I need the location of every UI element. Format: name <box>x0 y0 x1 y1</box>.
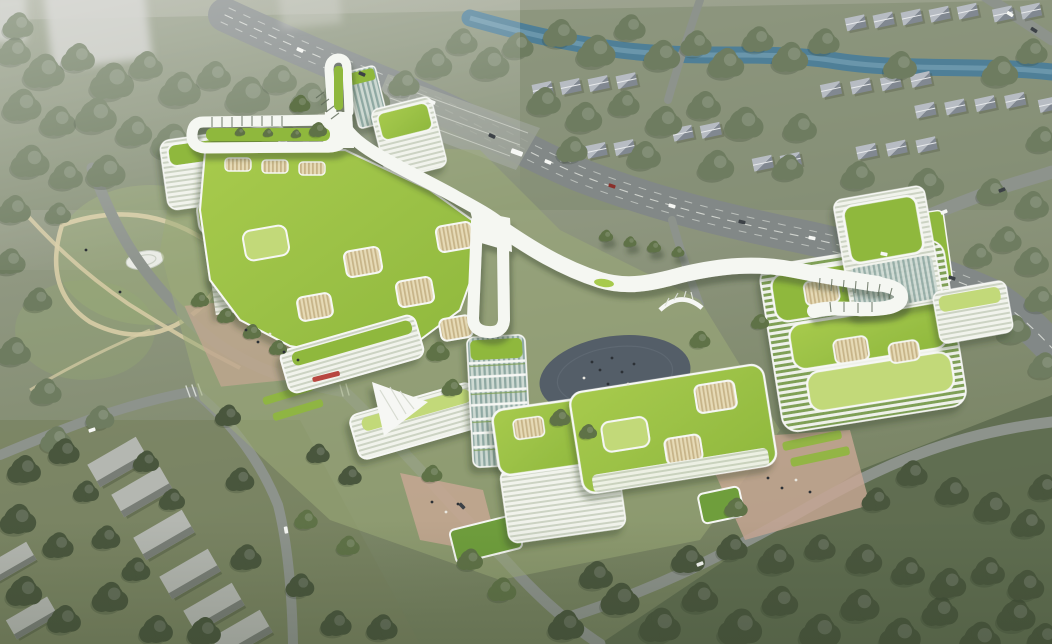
rendering-canvas <box>0 0 1052 644</box>
northeast-tower <box>833 185 944 317</box>
hairpin-garden <box>334 66 343 110</box>
aerial-rendering-image <box>0 0 1052 644</box>
bottom-vignette <box>0 520 1052 644</box>
